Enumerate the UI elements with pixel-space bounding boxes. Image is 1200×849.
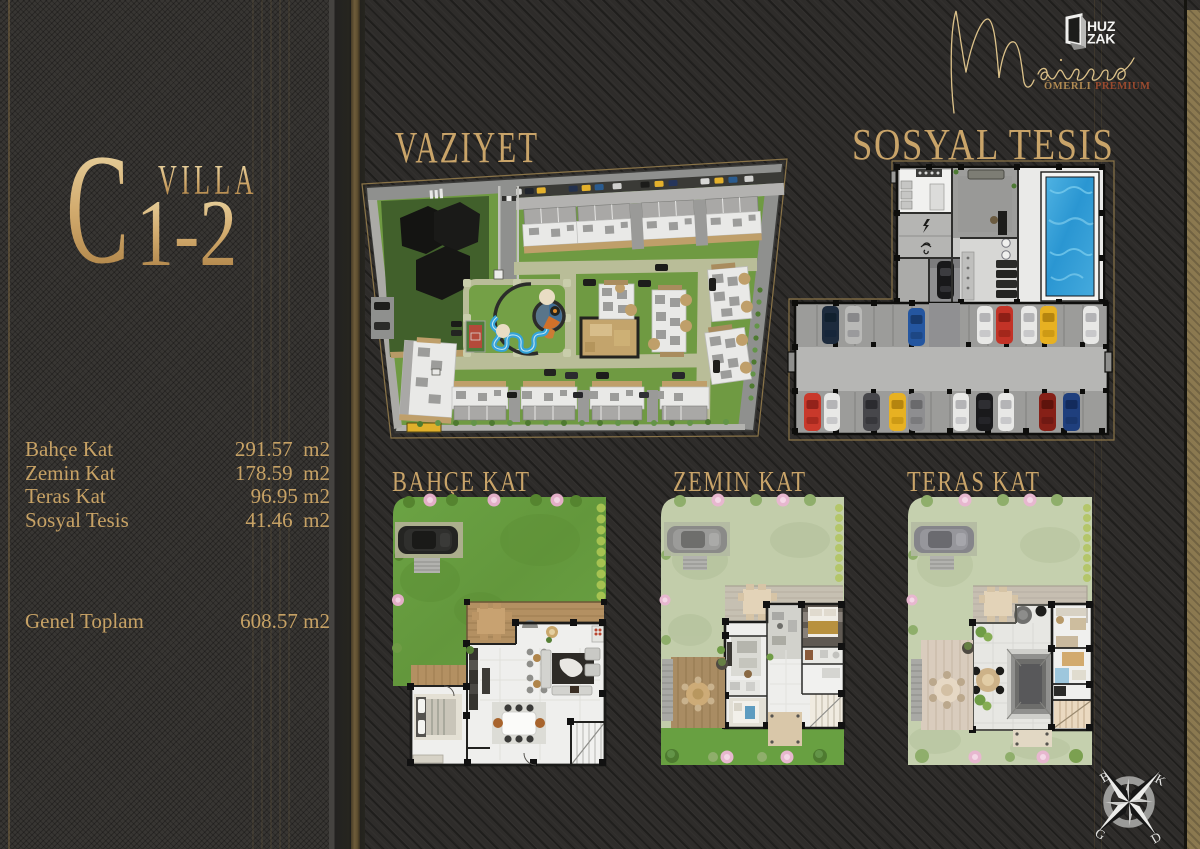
svg-text:G: G <box>1093 825 1109 843</box>
svg-text:PREMIUM: PREMIUM <box>1095 81 1150 92</box>
svg-text:K: K <box>1153 771 1169 789</box>
svg-text:ZAK: ZAK <box>1087 31 1115 47</box>
svg-text:ÔMERLI: ÔMERLI <box>1044 79 1091 92</box>
svg-text:D: D <box>1148 829 1164 847</box>
